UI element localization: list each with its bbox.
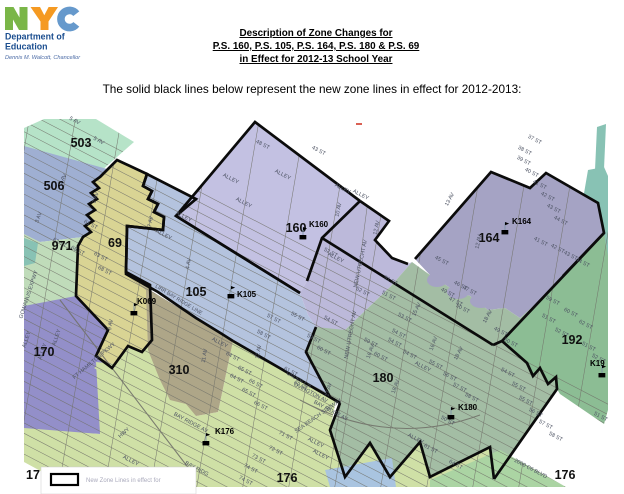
svg-text:17: 17 — [26, 468, 40, 482]
svg-text:37 ST: 37 ST — [527, 134, 543, 146]
svg-text:506: 506 — [44, 179, 65, 193]
svg-text:43 ST: 43 ST — [311, 145, 327, 157]
svg-text:503: 503 — [71, 136, 92, 150]
svg-text:176: 176 — [277, 471, 298, 485]
svg-text:Dennis M. Walcott, Chancellor: Dennis M. Walcott, Chancellor — [5, 55, 81, 61]
svg-text:176: 176 — [555, 468, 576, 482]
svg-text:K180: K180 — [458, 403, 478, 412]
svg-text:New Zone Lines in effect for: New Zone Lines in effect for — [86, 478, 161, 484]
svg-text:170: 170 — [34, 345, 55, 359]
svg-text:Department of: Department of — [5, 32, 65, 42]
svg-text:105: 105 — [186, 285, 207, 299]
svg-text:K19: K19 — [590, 359, 605, 368]
svg-text:192: 192 — [562, 333, 583, 347]
svg-text:69: 69 — [108, 236, 122, 250]
svg-text:971: 971 — [52, 239, 73, 253]
svg-text:180: 180 — [373, 371, 394, 385]
svg-text:40 ST: 40 ST — [524, 167, 540, 179]
svg-text:164: 164 — [479, 231, 500, 245]
svg-text:57 ST: 57 ST — [538, 419, 554, 431]
svg-text:K105: K105 — [237, 290, 257, 299]
svg-text:K160: K160 — [309, 220, 329, 229]
svg-text:K069: K069 — [137, 297, 157, 306]
svg-text:K164: K164 — [512, 217, 532, 226]
svg-text:13 AV: 13 AV — [444, 192, 456, 208]
svg-text:58 ST: 58 ST — [548, 431, 564, 443]
svg-text:K176: K176 — [215, 427, 235, 436]
svg-text:310: 310 — [169, 363, 190, 377]
svg-text:Education: Education — [5, 42, 48, 52]
